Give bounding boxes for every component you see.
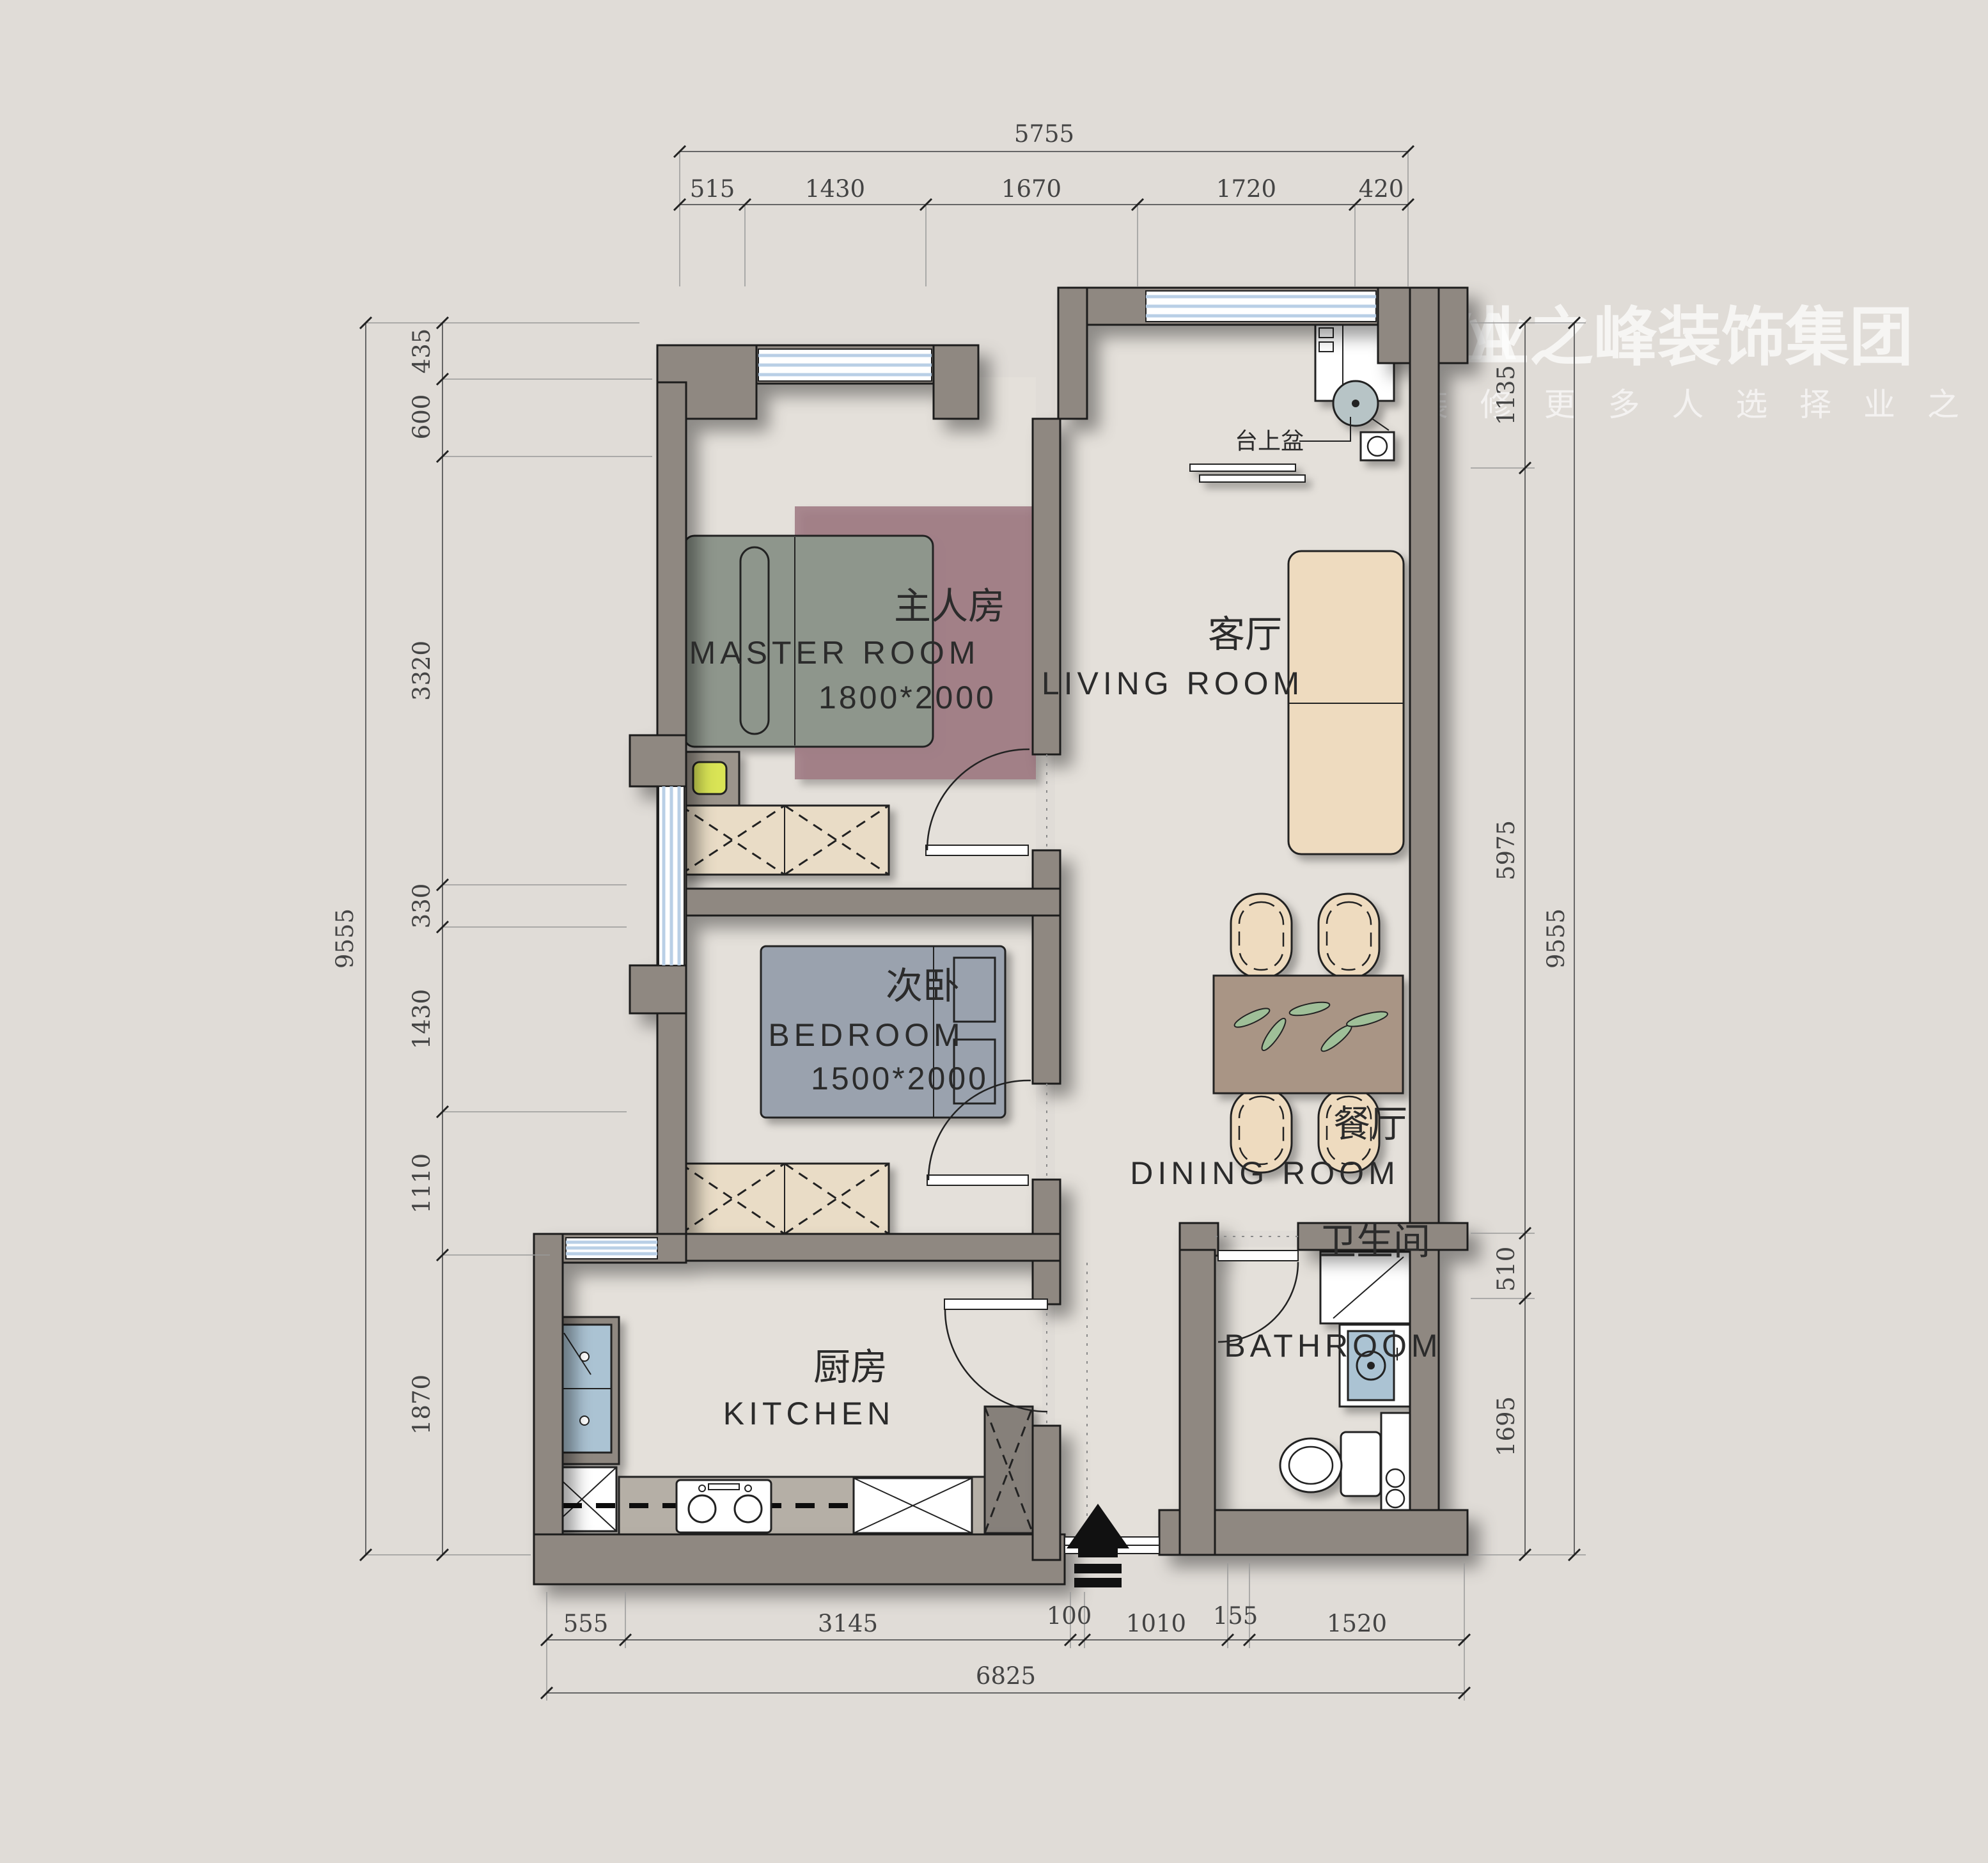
dim-label: 555 [563,1610,609,1637]
dim-right-overall: 9555 [1542,908,1570,969]
dim-label: 100 [1047,1602,1092,1630]
window-icon [1146,291,1376,322]
bathroom-left-wall [1180,1250,1215,1555]
kitchen-left-wall [534,1234,563,1584]
dim-bottom-overall: 6825 [976,1662,1036,1690]
wall-pier [630,965,686,1013]
dim-left-overall: 9555 [331,908,359,969]
window-icon [659,786,684,965]
bedroom-label-en: BEDROOM [768,1017,964,1053]
wall-pier [934,345,978,419]
dim-label: 1010 [1126,1610,1186,1637]
bath-cabinet [1381,1413,1410,1510]
bedroom-size: 1500*2000 [811,1061,989,1096]
lamp-icon [693,762,726,794]
dim-label: 1870 [408,1375,435,1435]
dim-label: 420 [1359,175,1404,203]
dim-label: 1720 [1216,175,1276,203]
dim-label: 330 [408,884,435,929]
dim-label: 1135 [1492,365,1520,425]
dim-label: 5975 [1492,820,1520,880]
dim-label: 1695 [1492,1396,1520,1456]
dim-label: 515 [690,175,735,203]
dim-label: 1430 [408,989,435,1049]
floor-plan-page: YENOVA 业之峰装饰集团 家 庭 装 修 更 多 人 选 择 业 之 峰 [0,0,1988,1863]
brand-company: 业之峰装饰集团 [1466,302,1913,373]
dim-top-overall: 5755 [1014,120,1074,148]
shoe-shelf [1200,475,1305,482]
dining-table [1214,976,1403,1093]
dim-label: 1670 [1001,175,1061,203]
wall-pier [630,735,686,786]
kitchen-label-en: KITCHEN [723,1396,895,1431]
stove [677,1480,771,1532]
bedroom-kitchen-wall [686,1234,1060,1261]
floor-plan-canvas: YENOVA 业之峰装饰集团 家 庭 装 修 更 多 人 选 择 业 之 峰 [0,0,1988,1863]
living-label-zh: 客厅 [1208,614,1282,655]
dim-label: 1520 [1327,1610,1387,1637]
shoe-shelf [1190,464,1295,471]
kitchen-bottom-wall [534,1534,1065,1584]
master-label-zh: 主人房 [894,586,1005,627]
dim-label: 1430 [805,175,865,203]
living-label-en: LIVING ROOM [1042,666,1304,701]
master-bedroom-wall [686,889,1060,916]
dim-label: 3320 [408,641,435,701]
kitchen-label-zh: 厨房 [813,1346,888,1388]
dining-label-zh: 餐厅 [1333,1103,1407,1145]
dim-label: 435 [408,329,435,374]
dim-label: 510 [1492,1247,1520,1292]
dining-label-en: DINING ROOM [1130,1155,1399,1191]
dim-label: 3145 [818,1610,878,1637]
dim-label: 155 [1213,1602,1258,1630]
right-wall [1410,288,1439,1555]
bathroom-label-en: BATHROOM [1224,1328,1442,1364]
bathroom-label-zh: 卫生间 [1319,1221,1430,1263]
master-label-en: MASTER ROOM [689,635,980,671]
dim-label: 1110 [408,1153,435,1213]
entry-hall-floor [1055,1221,1189,1541]
basin-callout-label: 台上盆 [1235,428,1304,454]
bedroom-label-zh: 次卧 [886,965,960,1007]
window-icon [566,1238,657,1259]
window-icon [758,349,932,381]
dim-label: 600 [408,394,435,440]
master-size: 1800*2000 [818,680,996,715]
